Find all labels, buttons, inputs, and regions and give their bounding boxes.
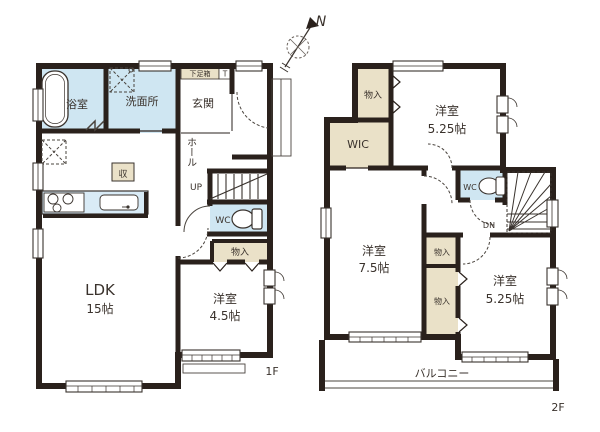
- stairs-2f: [507, 172, 551, 233]
- floor2-label: 2F: [551, 401, 564, 414]
- entrance-label: 玄関: [192, 96, 214, 110]
- refrigerator-space-icon: [42, 140, 66, 164]
- bath-label: 浴室: [66, 97, 88, 111]
- bedroom-left-door-arc: [424, 176, 452, 204]
- ldk-name-label: LDK: [85, 281, 116, 299]
- closet-mid-label-2f: 物入: [434, 247, 450, 257]
- shoe-box-label: 下足箱: [190, 69, 211, 78]
- bedroom-left-name-label: 洋室: [362, 243, 386, 258]
- wc-door-arc-1f: [184, 206, 210, 232]
- terrace-step-1f: [183, 364, 245, 373]
- bedroom-top-name-label: 洋室: [435, 103, 459, 118]
- wc-label-2f: WC: [463, 183, 477, 192]
- stairs-dn-label: DN: [483, 221, 495, 230]
- ldk-door-arc: [178, 228, 208, 258]
- sink-icon: [100, 195, 138, 210]
- compass-north-label: N: [316, 14, 327, 30]
- closet-top-label-2f: 物入: [364, 89, 382, 101]
- hall-label: ホール: [185, 137, 197, 167]
- compass-icon: [280, 17, 319, 72]
- stairs-up-label: UP: [190, 183, 203, 193]
- floor1-label: 1F: [265, 365, 278, 378]
- floor-plan-page: N: [0, 0, 600, 432]
- toilet-icon-1f: [232, 209, 262, 229]
- washroom-label: 洗面所: [126, 95, 159, 108]
- bedroom-right-name-label: 洋室: [493, 273, 517, 288]
- wic-label: WIC: [347, 138, 369, 151]
- bedroom-top-size-label: 5.25帖: [428, 121, 467, 136]
- kitchen-icon: [42, 191, 148, 216]
- balcony-label: バルコニー: [415, 367, 470, 380]
- shoe-box-tag-label: T: [222, 70, 228, 79]
- wc-label-1f: WC: [215, 216, 230, 226]
- ldk-size-label: 15帖: [86, 301, 113, 316]
- bedroom-left-size-label: 7.5帖: [358, 260, 389, 275]
- entrance-door-arc: [237, 92, 268, 128]
- closet-lower-label-2f: 物入: [434, 296, 450, 306]
- bathtub-icon: [42, 71, 68, 127]
- kitchen-storage-label: 収: [118, 168, 127, 180]
- bedroom-right-size-label: 5.25帖: [486, 291, 525, 306]
- bedroom45-name-label: 洋室: [213, 291, 237, 306]
- toilet-icon-2f: [479, 177, 505, 195]
- stairs-1f: [210, 174, 267, 199]
- bedroom45-size-label: 4.5帖: [209, 308, 240, 323]
- bedroom-right-door-arc: [463, 237, 490, 264]
- closet-label-1f: 物入: [231, 246, 249, 258]
- bedroom-top-door-arc: [428, 144, 452, 168]
- porch-1f: [272, 79, 291, 156]
